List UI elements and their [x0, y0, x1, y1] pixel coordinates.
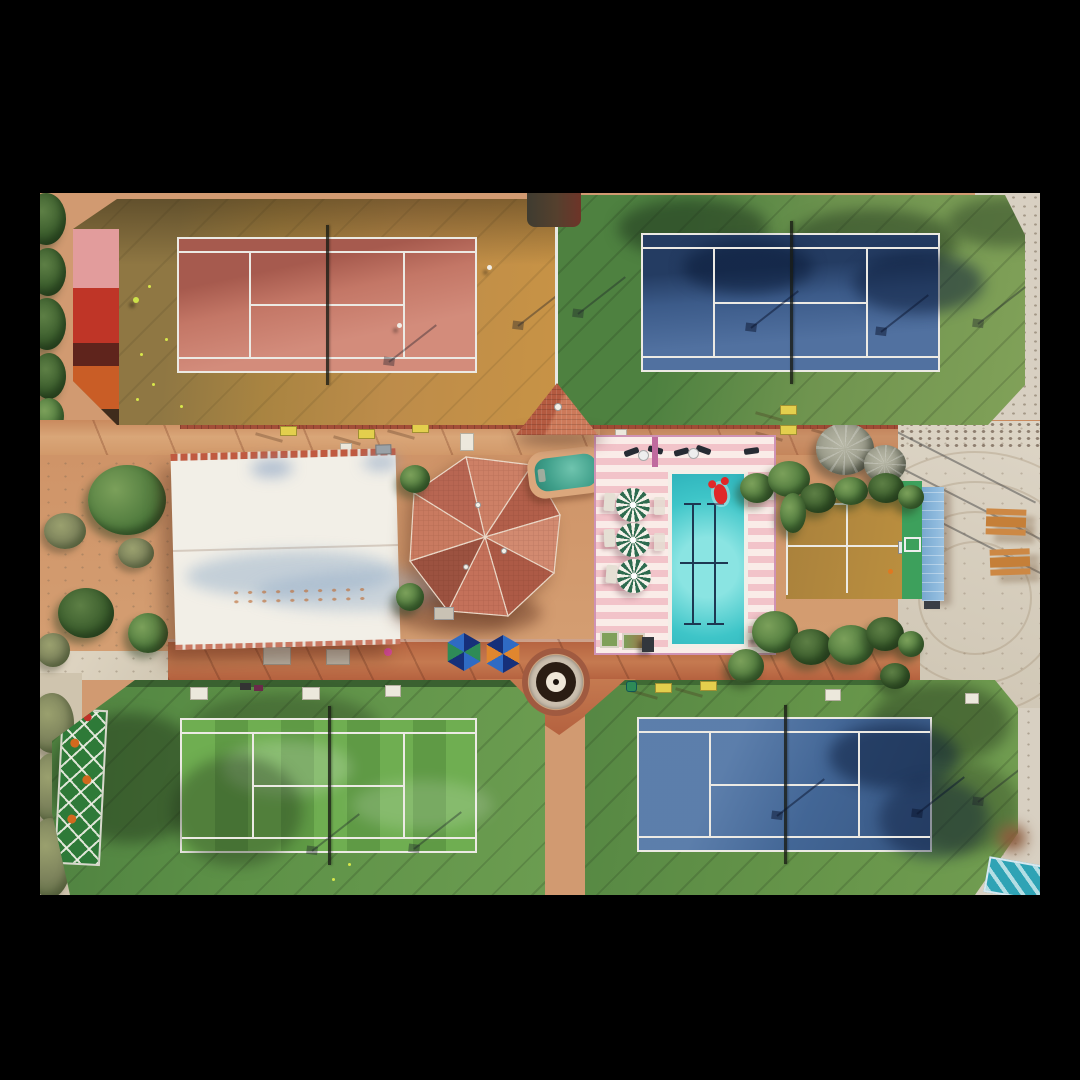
yellow-bench — [358, 429, 375, 439]
practice-wall-tarp-roof — [922, 487, 944, 601]
white-lounger — [654, 497, 665, 515]
tree — [40, 353, 66, 399]
court-top-left-enclosure — [40, 193, 558, 425]
white-lounger — [604, 529, 616, 548]
tree — [834, 477, 868, 505]
windscreen-orange — [73, 366, 119, 409]
lane-line — [684, 503, 701, 505]
flower-pot — [384, 648, 392, 656]
tree — [88, 465, 166, 535]
picnic-table — [986, 508, 1027, 535]
roof-markings — [229, 585, 369, 607]
yellow-bench — [655, 683, 672, 693]
pinwheel-umbrella — [616, 488, 650, 522]
lane-line — [692, 504, 694, 624]
court-bag — [240, 683, 251, 690]
court-bottom-right-enclosure — [580, 673, 1040, 895]
spa-steps — [537, 469, 546, 483]
swimming-pool — [668, 470, 748, 648]
windscreen-pink — [73, 229, 119, 288]
tennis-player — [397, 323, 402, 328]
green-court-surface — [180, 718, 477, 853]
tree — [728, 649, 764, 683]
blue-court-surface — [637, 717, 932, 852]
windscreen-red — [73, 288, 119, 343]
tennis-net — [326, 225, 329, 385]
steps — [263, 647, 291, 665]
tree — [780, 493, 806, 533]
gate-post — [460, 433, 474, 451]
white-bench — [190, 687, 208, 700]
spa-pool — [525, 445, 606, 501]
court-bottom-left-enclosure — [40, 673, 545, 895]
tennis-net — [328, 706, 331, 865]
lane-line — [684, 623, 701, 625]
orange-ball — [888, 569, 893, 574]
scrub-bush — [44, 513, 86, 549]
steps — [326, 649, 350, 665]
trees-notch — [527, 193, 581, 227]
roof-vent — [375, 444, 391, 454]
yellow-bench — [780, 405, 797, 415]
clay-court-surface — [177, 237, 477, 373]
picnic-table — [990, 548, 1031, 575]
tree — [790, 629, 832, 665]
rubble — [998, 825, 1026, 851]
yellow-bench — [780, 425, 797, 435]
tree — [880, 663, 910, 689]
blue-court-surface — [641, 233, 940, 372]
tree — [898, 631, 924, 657]
mini-goal — [904, 537, 921, 552]
bush — [400, 465, 430, 493]
pool-deck — [596, 437, 774, 653]
round-table — [688, 448, 699, 459]
pinwheel-umbrella — [616, 523, 650, 557]
tree — [128, 613, 168, 653]
windscreen-maroon — [73, 343, 119, 366]
yellow-bench — [700, 681, 717, 691]
sun-lounger — [744, 447, 760, 455]
tree — [40, 193, 66, 245]
lane-line — [714, 504, 716, 624]
white-bench — [302, 687, 320, 700]
white-lounger — [605, 565, 617, 584]
coach-figure — [133, 297, 139, 303]
tennis-net — [790, 221, 793, 384]
tree — [898, 485, 924, 509]
concrete-pad — [434, 607, 454, 620]
deck-gate — [652, 437, 658, 467]
scrub-bush — [118, 538, 154, 568]
bush — [396, 583, 424, 611]
white-bench — [385, 685, 401, 697]
lane-line — [680, 562, 728, 564]
green-bin — [626, 681, 637, 692]
round-table — [638, 450, 649, 461]
yellow-bench — [280, 426, 297, 436]
white-bench — [825, 689, 841, 701]
tennis-player — [487, 265, 492, 270]
tree — [58, 588, 114, 638]
tennis-net — [784, 705, 787, 864]
planter — [600, 631, 619, 648]
aerial-photo — [40, 193, 1040, 895]
letterbox-canvas — [0, 0, 1080, 1080]
pinwheel-umbrella — [617, 559, 651, 593]
tree — [40, 298, 66, 350]
white-lounger — [603, 493, 615, 512]
court-bag — [254, 685, 263, 691]
lobster-float — [712, 483, 728, 505]
tree — [40, 248, 66, 296]
white-lounger — [654, 533, 665, 551]
pool-grill — [642, 637, 654, 652]
lane-line — [707, 623, 724, 625]
fountain — [522, 648, 590, 716]
clubhouse-roof — [170, 448, 400, 650]
gazebo-ornament — [554, 403, 562, 411]
court-top-right-enclosure — [558, 193, 1040, 425]
white-bench — [965, 693, 979, 704]
